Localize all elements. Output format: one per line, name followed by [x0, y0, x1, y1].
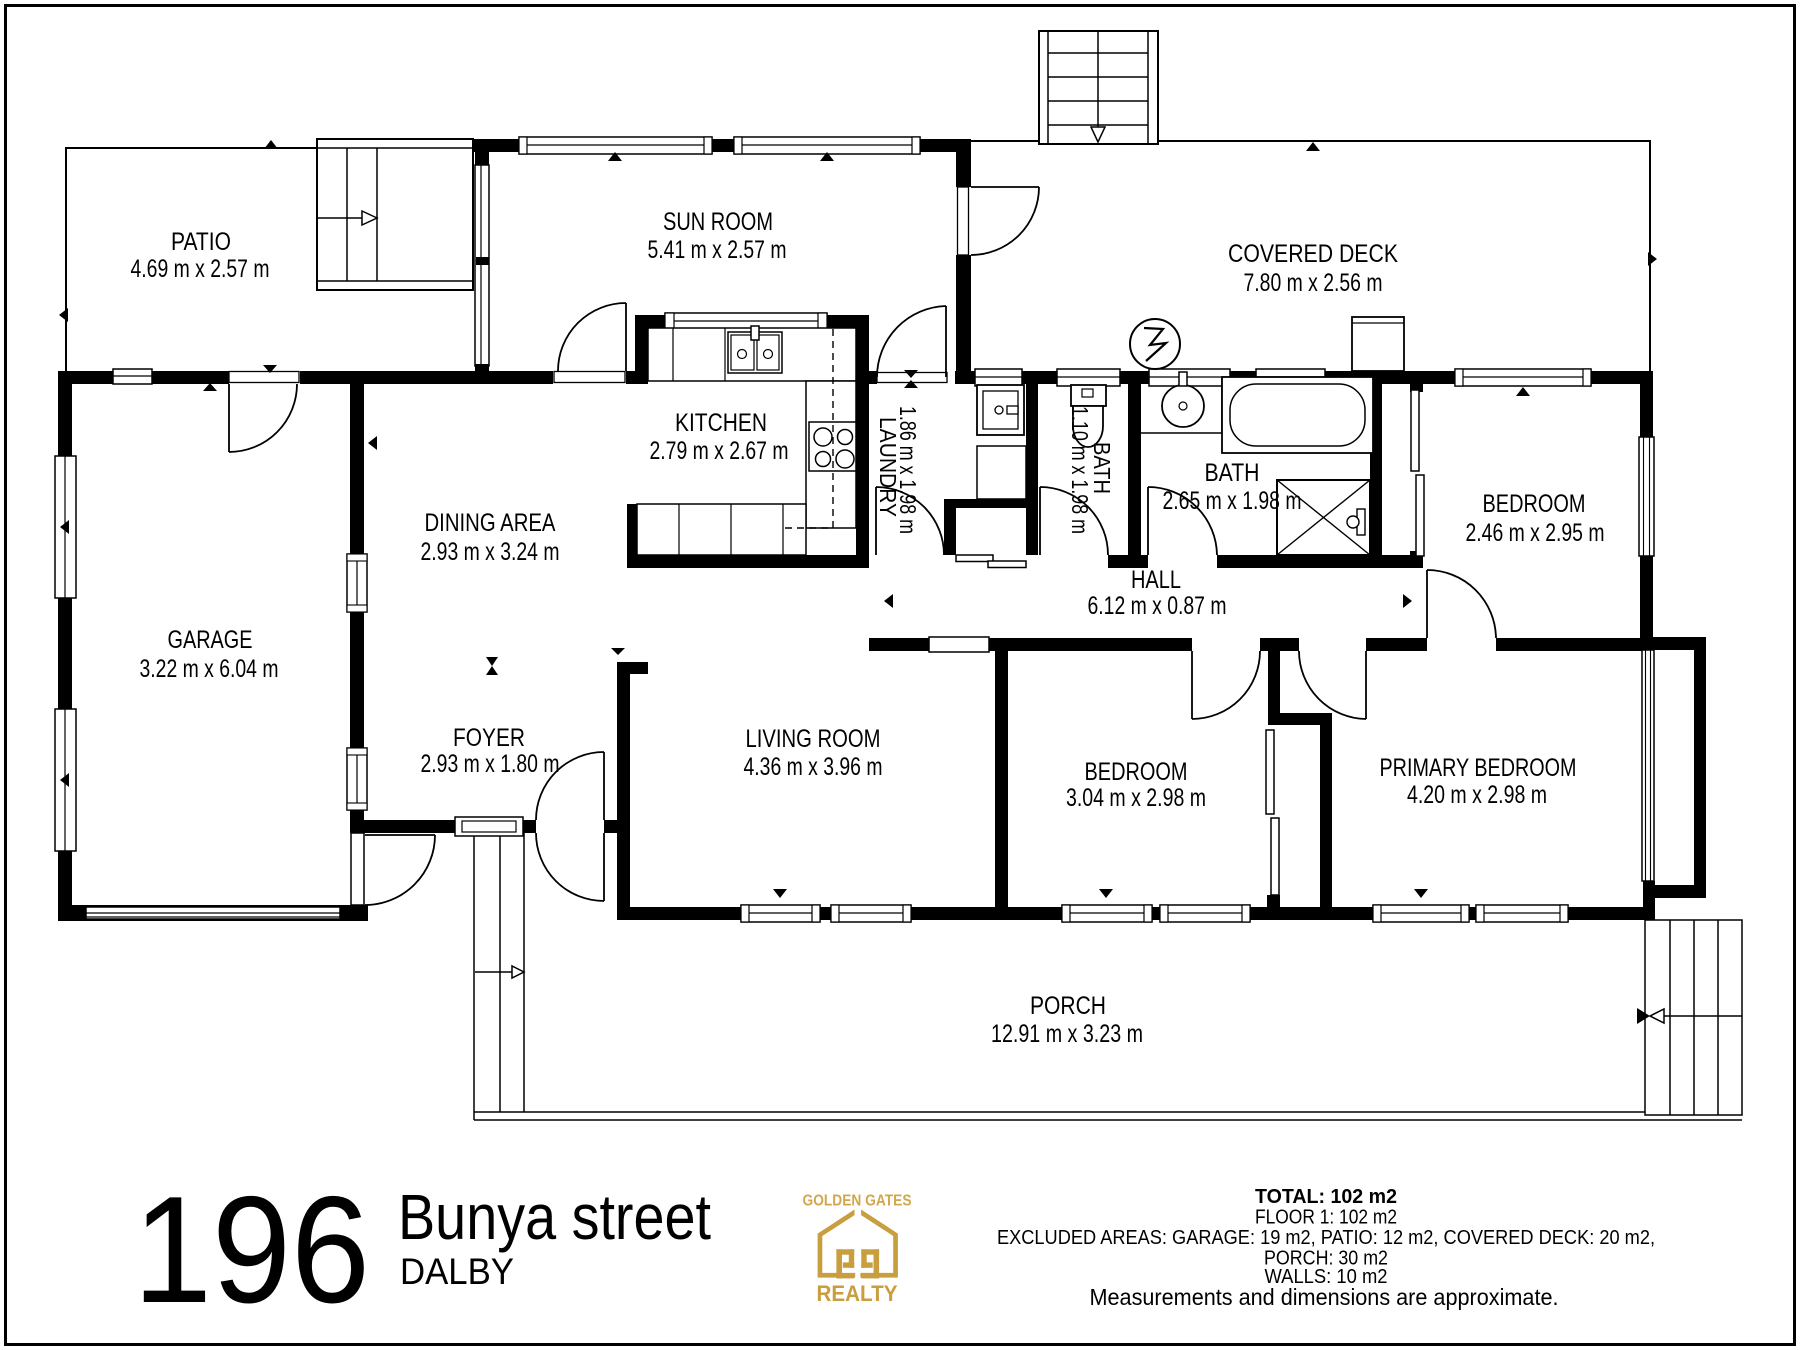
svg-text:PORCH: PORCH	[1030, 992, 1106, 1020]
svg-text:FOYER: FOYER	[453, 724, 525, 752]
svg-text:2.65 m x 1.98 m: 2.65 m x 1.98 m	[1163, 487, 1302, 515]
svg-text:2.79 m x 2.67 m: 2.79 m x 2.67 m	[650, 437, 789, 465]
svg-text:1.10 m x 1.98 m: 1.10 m x 1.98 m	[1067, 406, 1093, 534]
svg-text:12.91 m x 3.23 m: 12.91 m x 3.23 m	[991, 1020, 1143, 1048]
svg-text:DALBY: DALBY	[400, 1251, 514, 1292]
svg-text:GOLDEN GATES: GOLDEN GATES	[803, 1193, 912, 1210]
svg-text:DINING AREA: DINING AREA	[425, 509, 556, 537]
svg-text:SUN ROOM: SUN ROOM	[663, 208, 773, 236]
svg-text:HALL: HALL	[1131, 566, 1181, 594]
svg-text:KITCHEN: KITCHEN	[675, 409, 767, 437]
svg-text:4.36 m x 3.96 m: 4.36 m x 3.96 m	[744, 753, 883, 781]
svg-text:FLOOR 1: 102 m2: FLOOR 1: 102 m2	[1255, 1207, 1397, 1229]
svg-text:2.93 m x 3.24 m: 2.93 m x 3.24 m	[421, 538, 560, 566]
svg-text:EXCLUDED AREAS: GARAGE: 19 m2,: EXCLUDED AREAS: GARAGE: 19 m2, PATIO: 12…	[997, 1227, 1655, 1249]
svg-text:1.86 m x 1.98 m: 1.86 m x 1.98 m	[895, 406, 921, 534]
svg-text:GARAGE: GARAGE	[168, 626, 253, 654]
svg-text:2.46 m x 2.95 m: 2.46 m x 2.95 m	[1466, 519, 1605, 547]
svg-text:7.80 m x 2.56 m: 7.80 m x 2.56 m	[1244, 269, 1383, 297]
svg-text:4.69 m x 2.57 m: 4.69 m x 2.57 m	[131, 255, 270, 283]
svg-text:196: 196	[133, 1165, 370, 1335]
svg-text:Measurements and dimensions ar: Measurements and dimensions are approxim…	[1090, 1284, 1559, 1310]
svg-text:COVERED DECK: COVERED DECK	[1228, 240, 1398, 268]
svg-text:BEDROOM: BEDROOM	[1085, 758, 1188, 786]
svg-text:3.04 m x 2.98 m: 3.04 m x 2.98 m	[1066, 784, 1206, 812]
svg-text:PATIO: PATIO	[171, 228, 231, 256]
svg-text:4.20 m x 2.98 m: 4.20 m x 2.98 m	[1407, 781, 1547, 809]
svg-text:TOTAL: 102 m2: TOTAL: 102 m2	[1255, 1186, 1397, 1208]
svg-text:LIVING ROOM: LIVING ROOM	[746, 725, 881, 753]
svg-text:REALTY: REALTY	[817, 1281, 898, 1306]
svg-text:BEDROOM: BEDROOM	[1483, 490, 1586, 518]
svg-text:5.41 m x 2.57 m: 5.41 m x 2.57 m	[648, 236, 787, 264]
svg-text:6.12 m x 0.87 m: 6.12 m x 0.87 m	[1088, 592, 1227, 620]
svg-text:PRIMARY BEDROOM: PRIMARY BEDROOM	[1380, 754, 1577, 782]
svg-text:BATH: BATH	[1205, 459, 1260, 487]
svg-text:Bunya street: Bunya street	[398, 1181, 711, 1253]
svg-text:3.22 m x 6.04 m: 3.22 m x 6.04 m	[140, 655, 279, 683]
svg-text:2.93 m x 1.80 m: 2.93 m x 1.80 m	[421, 750, 560, 778]
